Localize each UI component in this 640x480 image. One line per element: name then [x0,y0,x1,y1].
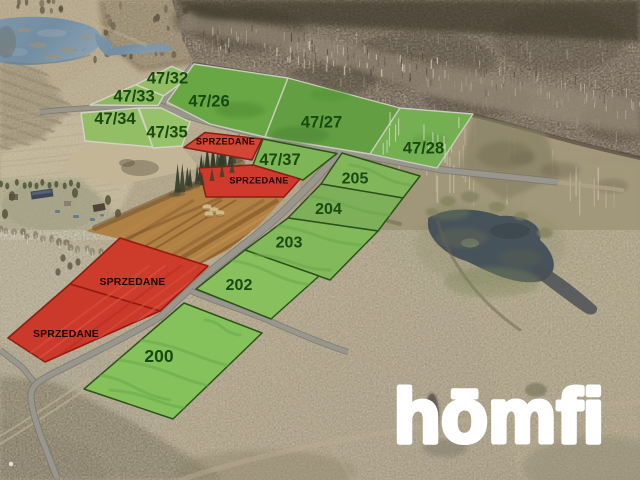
svg-text:47/26: 47/26 [188,93,229,111]
svg-text:47/35: 47/35 [146,124,187,142]
svg-text:47/37: 47/37 [259,151,300,169]
svg-text:200: 200 [144,346,173,366]
svg-text:204: 204 [315,201,342,218]
svg-text:hōmfi: hōmfi [394,374,604,459]
svg-text:205: 205 [342,171,369,188]
svg-text:SPRZEDANE: SPRZEDANE [229,176,288,186]
svg-text:47/34: 47/34 [94,110,136,128]
svg-text:SPRZEDANE: SPRZEDANE [100,277,166,288]
svg-text:203: 203 [276,235,303,252]
svg-text:47/32: 47/32 [147,70,188,88]
svg-text:47/27: 47/27 [301,114,342,132]
svg-text:47/33: 47/33 [113,88,154,106]
svg-text:SPRZEDANE: SPRZEDANE [196,137,255,147]
svg-text:SPRZEDANE: SPRZEDANE [33,329,99,340]
svg-text:47/28: 47/28 [403,140,444,158]
svg-text:202: 202 [226,277,253,294]
